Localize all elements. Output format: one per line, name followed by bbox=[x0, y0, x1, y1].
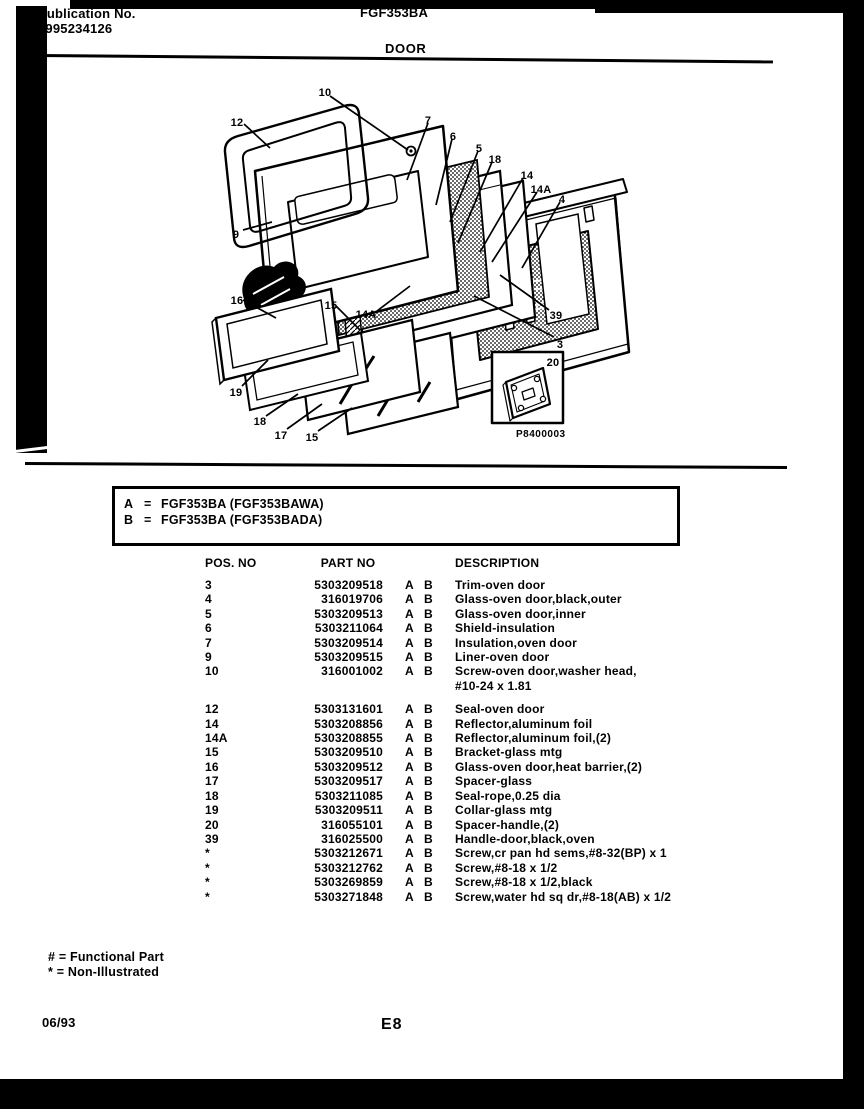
ab-cell: A B bbox=[391, 578, 455, 592]
pos-cell: 4 bbox=[205, 592, 313, 606]
page-title: DOOR bbox=[385, 41, 426, 56]
table-row: 35303209518A BTrim-oven door bbox=[205, 578, 685, 592]
table-row: *5303212671A BScrew,cr pan hd sems,#8-32… bbox=[205, 846, 685, 860]
part-cell: 316019706 bbox=[313, 592, 391, 606]
part-cell: 5303271848 bbox=[313, 890, 391, 904]
variant-key: A bbox=[124, 496, 144, 512]
pos-cell: 18 bbox=[205, 789, 313, 803]
footer-page-number: E8 bbox=[381, 1016, 403, 1034]
header-pos-no: POS. NO bbox=[205, 556, 313, 570]
table-row: 4316019706A BGlass-oven door,black,outer bbox=[205, 592, 685, 606]
table-row: 20316055101A BSpacer-handle,(2) bbox=[205, 818, 685, 832]
table-row: 165303209512A BGlass-oven door,heat barr… bbox=[205, 760, 685, 774]
header-description: DESCRIPTION bbox=[455, 556, 685, 570]
ab-cell: A B bbox=[391, 890, 455, 904]
part-cell: 5303208855 bbox=[313, 731, 391, 745]
table-row: 95303209515A BLiner-oven door bbox=[205, 650, 685, 664]
scan-edge-top bbox=[70, 0, 610, 9]
desc-cell: Reflector,aluminum foil,(2) bbox=[455, 731, 685, 745]
desc-cell: Seal-rope,0.25 dia bbox=[455, 789, 685, 803]
legend: # = Functional Part * = Non-Illustrated bbox=[48, 950, 164, 980]
ab-cell: A B bbox=[391, 607, 455, 621]
pos-cell: 7 bbox=[205, 636, 313, 650]
header-spacer bbox=[391, 556, 455, 570]
variant-model: FGF353BA (FGF353BADA) bbox=[161, 512, 322, 528]
ab-cell: A B bbox=[391, 875, 455, 889]
model-variant-box: A = FGF353BA (FGF353BAWA) B = FGF353BA (… bbox=[112, 486, 680, 546]
part-cell: 5303209517 bbox=[313, 774, 391, 788]
desc-cell: Insulation,oven door bbox=[455, 636, 685, 650]
part-cell: 5303131601 bbox=[313, 702, 391, 716]
table-row: 65303211064A BShield-insulation bbox=[205, 621, 685, 635]
desc-cell: Liner-oven door bbox=[455, 650, 685, 664]
desc-cell: Glass-oven door,inner bbox=[455, 607, 685, 621]
pos-cell: 20 bbox=[205, 818, 313, 832]
table-row: 39316025500A BHandle-door,black,oven bbox=[205, 832, 685, 846]
ab-cell: A B bbox=[391, 760, 455, 774]
pos-cell: 19 bbox=[205, 803, 313, 817]
desc-cell: Reflector,aluminum foil bbox=[455, 717, 685, 731]
callout-20: 20 bbox=[547, 357, 560, 369]
publication-number: 5995234126 bbox=[38, 21, 136, 36]
callout-12: 12 bbox=[231, 117, 244, 129]
model-variant-a: A = FGF353BA (FGF353BAWA) bbox=[124, 496, 677, 512]
part-cell: 5303209512 bbox=[313, 760, 391, 774]
table-row: *5303269859A BScrew,#8-18 x 1/2,black bbox=[205, 875, 685, 889]
callout-9: 9 bbox=[233, 229, 239, 241]
callout-14a-2: 14A bbox=[356, 309, 377, 321]
callout-10: 10 bbox=[319, 87, 332, 99]
part-cell: 5303208856 bbox=[313, 717, 391, 731]
desc-cell: Spacer-handle,(2) bbox=[455, 818, 685, 832]
footer-date: 06/93 bbox=[42, 1015, 76, 1030]
part-cell: 5303209514 bbox=[313, 636, 391, 650]
variant-key: B bbox=[124, 512, 144, 528]
ab-cell: A B bbox=[391, 717, 455, 731]
part-cell: 316001002 bbox=[313, 664, 391, 693]
scan-edge-top-right bbox=[595, 0, 864, 13]
table-row: 14A5303208855A BReflector,aluminum foil,… bbox=[205, 731, 685, 745]
ab-cell: A B bbox=[391, 803, 455, 817]
pos-cell: 3 bbox=[205, 578, 313, 592]
pos-cell: 14A bbox=[205, 731, 313, 745]
table-row: 195303209511A BCollar-glass mtg bbox=[205, 803, 685, 817]
table-row: *5303212762A BScrew,#8-18 x 1/2 bbox=[205, 861, 685, 875]
callout-14a: 14A bbox=[531, 184, 552, 196]
ab-cell: A B bbox=[391, 621, 455, 635]
pos-cell: * bbox=[205, 861, 313, 875]
table-row: 55303209513A BGlass-oven door,inner bbox=[205, 607, 685, 621]
pos-cell: 9 bbox=[205, 650, 313, 664]
callout-17: 17 bbox=[275, 430, 288, 442]
part-cell: 5303211064 bbox=[313, 621, 391, 635]
desc-cell: Bracket-glass mtg bbox=[455, 745, 685, 759]
equals-sign: = bbox=[144, 496, 161, 512]
part-cell: 5303209513 bbox=[313, 607, 391, 621]
variant-model: FGF353BA (FGF353BAWA) bbox=[161, 496, 324, 512]
callout-15-2: 15 bbox=[306, 432, 319, 444]
part-cell: 5303212762 bbox=[313, 861, 391, 875]
part-cell: 5303209518 bbox=[313, 578, 391, 592]
desc-cell: Screw-oven door,washer head,#10-24 x 1.8… bbox=[455, 664, 685, 693]
part-cell: 5303269859 bbox=[313, 875, 391, 889]
ab-cell: A B bbox=[391, 832, 455, 846]
part-cell: 5303209515 bbox=[313, 650, 391, 664]
scan-edge-bottom bbox=[0, 1079, 864, 1109]
part-cell: 5303209511 bbox=[313, 803, 391, 817]
desc-cell: Shield-insulation bbox=[455, 621, 685, 635]
part-cell: 316055101 bbox=[313, 818, 391, 832]
desc-cell: Handle-door,black,oven bbox=[455, 832, 685, 846]
table-row: 175303209517A BSpacer-glass bbox=[205, 774, 685, 788]
publication-block: Publication No. 5995234126 bbox=[38, 6, 136, 36]
pos-cell: * bbox=[205, 846, 313, 860]
desc-cell: Screw,#8-18 x 1/2,black bbox=[455, 875, 685, 889]
part-cell: 5303212671 bbox=[313, 846, 391, 860]
table-row: 75303209514A BInsulation,oven door bbox=[205, 636, 685, 650]
ab-cell: A B bbox=[391, 861, 455, 875]
callout-14: 14 bbox=[521, 170, 534, 182]
table-row: 125303131601A BSeal-oven door bbox=[205, 702, 685, 716]
legend-non-illustrated: * = Non-Illustrated bbox=[48, 965, 164, 980]
pos-cell: 16 bbox=[205, 760, 313, 774]
table-row: 145303208856A BReflector,aluminum foil bbox=[205, 717, 685, 731]
part-cell: 5303209510 bbox=[313, 745, 391, 759]
table-row: 185303211085A BSeal-rope,0.25 dia bbox=[205, 789, 685, 803]
table-row: *5303271848A BScrew,water hd sq dr,#8-18… bbox=[205, 890, 685, 904]
table-header: POS. NO PART NO DESCRIPTION bbox=[205, 556, 685, 570]
callout-18: 18 bbox=[489, 154, 502, 166]
part-cell: 316025500 bbox=[313, 832, 391, 846]
callout-15: 15 bbox=[325, 300, 338, 312]
ab-cell: A B bbox=[391, 636, 455, 650]
table-row: 10316001002A BScrew-oven door,washer hea… bbox=[205, 664, 685, 693]
publication-label: Publication No. bbox=[38, 6, 136, 21]
ab-cell: A B bbox=[391, 745, 455, 759]
pos-cell: 14 bbox=[205, 717, 313, 731]
model-variant-b: B = FGF353BA (FGF353BADA) bbox=[124, 512, 677, 528]
pos-cell: * bbox=[205, 890, 313, 904]
desc-cell: Collar-glass mtg bbox=[455, 803, 685, 817]
callout-6: 6 bbox=[450, 131, 456, 143]
callout-5: 5 bbox=[476, 143, 482, 155]
pos-cell: 39 bbox=[205, 832, 313, 846]
pos-cell: 17 bbox=[205, 774, 313, 788]
desc-cell: Seal-oven door bbox=[455, 702, 685, 716]
table-row: 155303209510A BBracket-glass mtg bbox=[205, 745, 685, 759]
callout-18-2: 18 bbox=[254, 416, 267, 428]
equals-sign: = bbox=[144, 512, 161, 528]
desc-cell: Glass-oven door,black,outer bbox=[455, 592, 685, 606]
desc-cell: Screw,water hd sq dr,#8-18(AB) x 1/2 bbox=[455, 890, 685, 904]
model-number: FGF353BA bbox=[360, 5, 428, 20]
ab-cell: A B bbox=[391, 731, 455, 745]
callout-16: 16 bbox=[231, 295, 244, 307]
callout-4: 4 bbox=[559, 194, 566, 206]
legend-functional: # = Functional Part bbox=[48, 950, 164, 965]
desc-cell: Trim-oven door bbox=[455, 578, 685, 592]
pos-cell: 10 bbox=[205, 664, 313, 693]
parts-table: POS. NO PART NO DESCRIPTION 35303209518A… bbox=[205, 556, 685, 904]
desc-cell: Spacer-glass bbox=[455, 774, 685, 788]
exploded-diagram: 10 12 7 6 5 18 14 14A 4 9 16 15 14A 19 1… bbox=[0, 58, 864, 470]
callout-39: 39 bbox=[550, 310, 563, 322]
ab-cell: A B bbox=[391, 818, 455, 832]
callout-3: 3 bbox=[557, 339, 563, 351]
desc-cell: Screw,cr pan hd sems,#8-32(BP) x 1 bbox=[455, 846, 685, 860]
desc-cell: Glass-oven door,heat barrier,(2) bbox=[455, 760, 685, 774]
ab-cell: A B bbox=[391, 592, 455, 606]
ab-cell: A B bbox=[391, 789, 455, 803]
callout-7: 7 bbox=[425, 115, 431, 127]
desc-cell: Screw,#8-18 x 1/2 bbox=[455, 861, 685, 875]
callout-19: 19 bbox=[230, 387, 243, 399]
pos-cell: 6 bbox=[205, 621, 313, 635]
part-screw bbox=[407, 147, 416, 156]
pos-cell: 5 bbox=[205, 607, 313, 621]
ab-cell: A B bbox=[391, 702, 455, 716]
header-part-no: PART NO bbox=[313, 556, 391, 570]
pos-cell: 15 bbox=[205, 745, 313, 759]
part-cell: 5303211085 bbox=[313, 789, 391, 803]
ab-cell: A B bbox=[391, 774, 455, 788]
pos-cell: 12 bbox=[205, 702, 313, 716]
ab-cell: A B bbox=[391, 650, 455, 664]
ab-cell: A B bbox=[391, 664, 455, 693]
figure-code: P8400003 bbox=[516, 429, 566, 440]
pos-cell: * bbox=[205, 875, 313, 889]
ab-cell: A B bbox=[391, 846, 455, 860]
